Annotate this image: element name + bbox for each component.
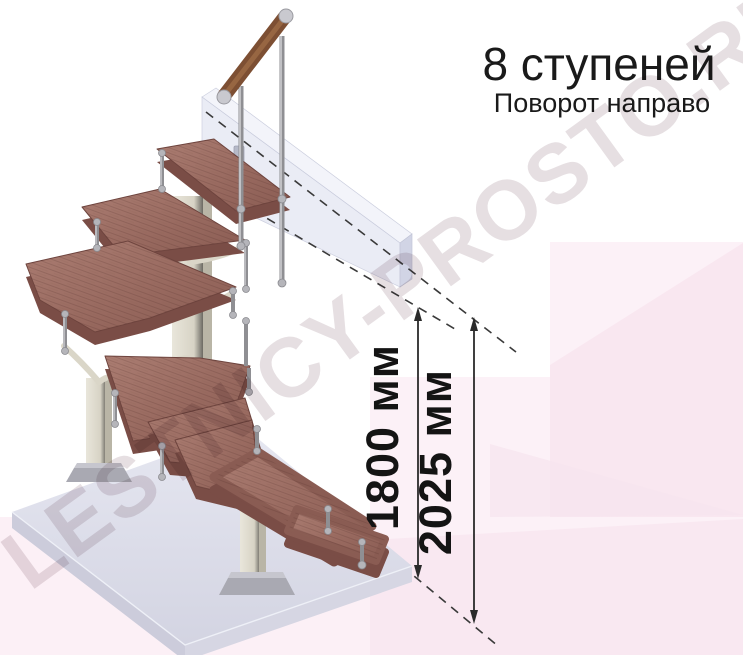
handrail-bottom-cap [217,90,231,104]
handrail-top-cap [279,9,293,23]
dimension-label-1800: 1800 мм [357,344,408,530]
arrow-up-icon [470,317,478,331]
dimension-label-2025: 2025 мм [410,369,461,555]
right-base-plate [219,578,295,595]
illustration-canvas: 1800 мм 2025 мм 8 ступеней Поворот напра… [0,0,743,655]
staircase-diagram: 1800 мм 2025 мм 8 ступеней Поворот напра… [0,0,743,655]
